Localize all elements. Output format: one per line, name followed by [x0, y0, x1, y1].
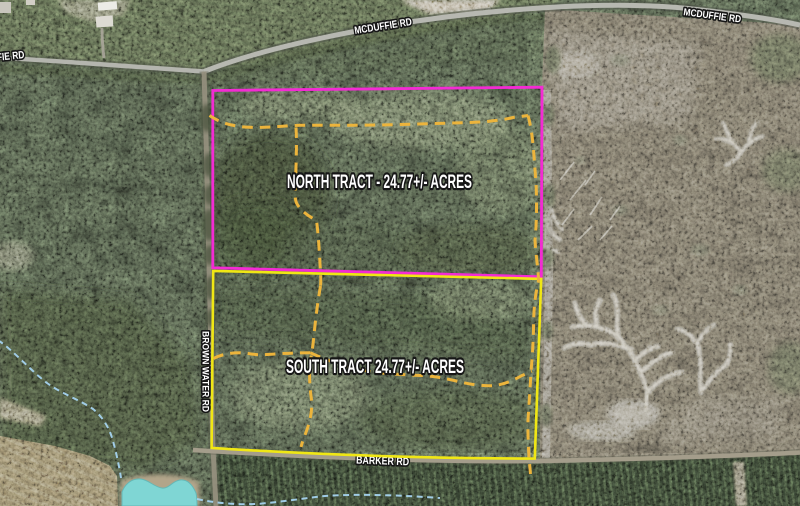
svg-text:BROWN WATER RD: BROWN WATER RD	[200, 331, 211, 412]
svg-text:NORTH TRACT - 24.77+/- ACRES: NORTH TRACT - 24.77+/- ACRES	[287, 172, 472, 193]
svg-text:SOUTH TRACT 24.77+/- ACRES: SOUTH TRACT 24.77+/- ACRES	[286, 357, 464, 378]
